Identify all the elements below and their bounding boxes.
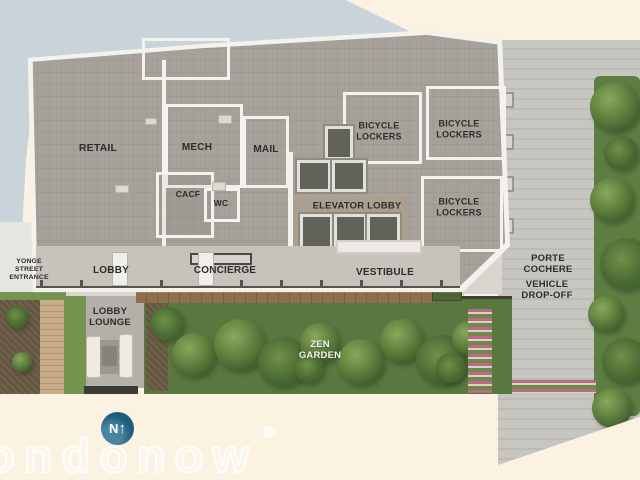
fixture xyxy=(218,115,232,124)
terrace-edge xyxy=(84,386,138,394)
label-mail: MAIL xyxy=(253,144,278,156)
label-lobby-lounge: LOBBY LOUNGE xyxy=(89,306,131,328)
building xyxy=(20,26,512,294)
elevator-cab xyxy=(297,160,331,192)
alcove xyxy=(142,38,230,80)
tree xyxy=(436,353,466,383)
elevator-cab xyxy=(325,126,353,160)
tree xyxy=(592,388,632,428)
elevator-cab xyxy=(300,214,333,250)
label-retail: RETAIL xyxy=(79,142,117,154)
coffee-table xyxy=(102,346,117,366)
elevator-cab xyxy=(332,160,366,192)
tree xyxy=(588,296,624,332)
label-concierge: CONCIERGE xyxy=(194,265,256,277)
sofa xyxy=(119,334,133,378)
label-bicycle-lockers: BICYCLE LOCKERS xyxy=(356,120,401,141)
fixture xyxy=(212,182,226,191)
label-cacf: CACF xyxy=(176,189,200,199)
flower-bed xyxy=(468,309,492,393)
tree xyxy=(604,136,638,170)
fixture xyxy=(115,185,129,193)
tree xyxy=(602,338,640,384)
label-vestibule: VESTIBULE xyxy=(356,267,414,279)
label-vehicle-dropoff: VEHICLE DROP-OFF xyxy=(521,279,572,301)
label-wc: WC xyxy=(214,198,229,208)
flower-bed xyxy=(506,380,596,393)
label-bicycle-lockers: BICYCLE LOCKERS xyxy=(436,118,481,139)
shrub xyxy=(6,306,28,328)
label-mech: MECH xyxy=(182,142,212,154)
label-zen-garden: ZEN GARDEN xyxy=(299,339,341,361)
vestibule-canopy xyxy=(336,240,422,254)
shrub xyxy=(12,352,32,372)
storefront-columns xyxy=(40,280,456,286)
floor-plan: RETAIL MECH MAIL CACF WC BICYCLE LOCKERS… xyxy=(0,0,640,480)
sofa xyxy=(86,336,101,378)
tree xyxy=(590,178,634,222)
label-porte-cochere: PORTE COCHERE xyxy=(524,253,573,275)
label-bicycle-lockers: BICYCLE LOCKERS xyxy=(436,196,481,217)
registered-mark-icon: ® xyxy=(264,424,275,441)
boardwalk xyxy=(40,300,66,394)
fixture xyxy=(145,118,157,125)
watermark-logo: ondonow xyxy=(0,428,346,480)
tree xyxy=(590,82,640,132)
label-lobby: LOBBY xyxy=(93,265,129,277)
tree xyxy=(172,333,216,377)
grass xyxy=(64,296,86,394)
tree xyxy=(338,339,384,385)
tree xyxy=(150,307,184,341)
wall xyxy=(288,152,293,252)
label-elevator-lobby: ELEVATOR LOBBY xyxy=(313,200,402,211)
label-yonge-street-entrance: YONGE STREET ENTRANCE xyxy=(9,258,48,282)
